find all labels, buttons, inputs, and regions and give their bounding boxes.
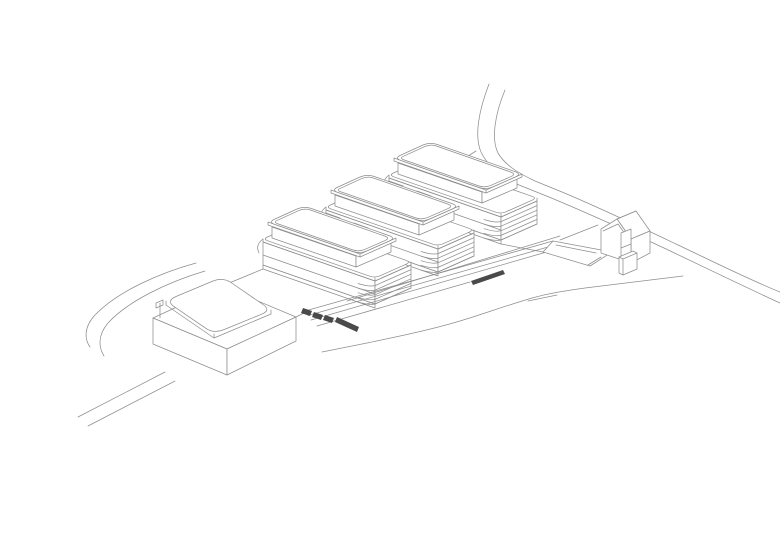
site-plan-page bbox=[0, 0, 780, 551]
podium-building bbox=[153, 279, 296, 375]
site-axonometric-line-drawing bbox=[0, 0, 780, 551]
gabled-house bbox=[588, 211, 650, 275]
site-axonometric-drawing bbox=[0, 0, 780, 551]
footpath bbox=[78, 372, 175, 426]
